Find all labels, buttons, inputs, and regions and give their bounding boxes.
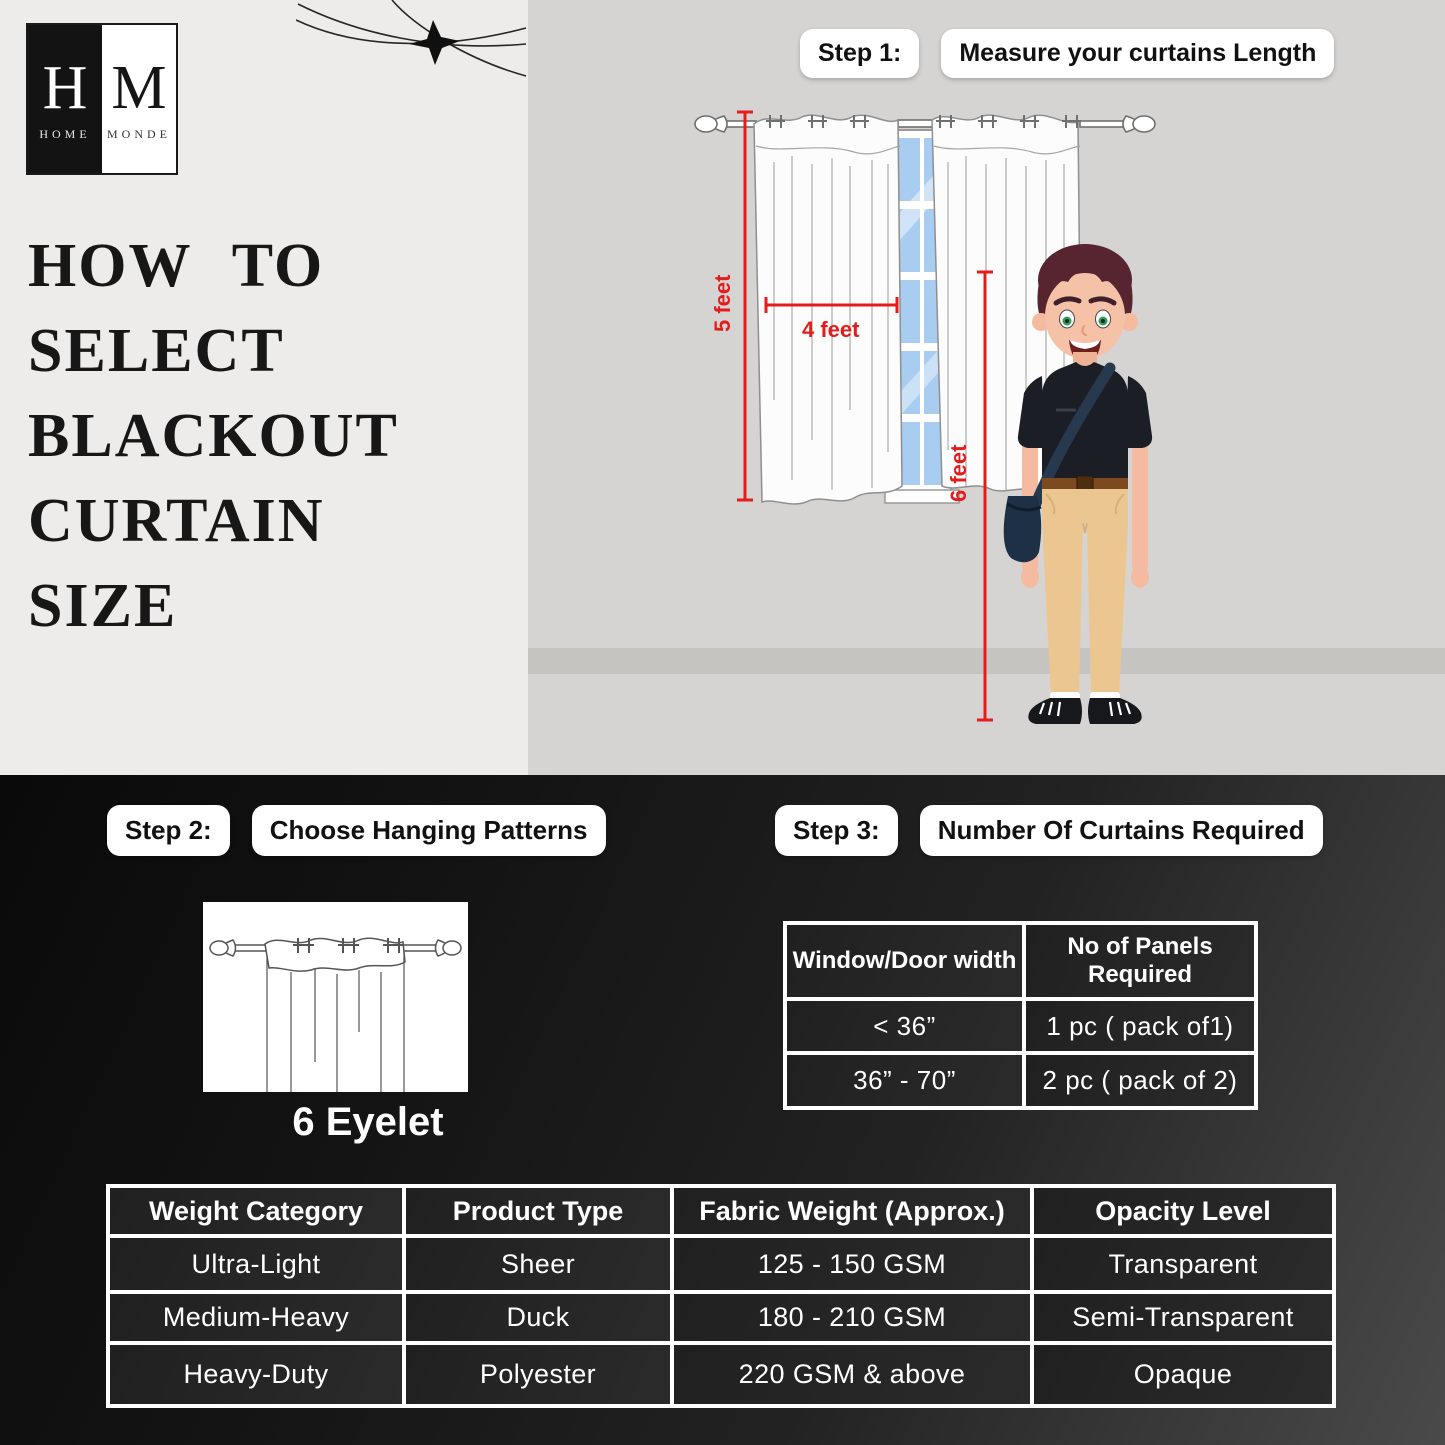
panels-table-header-width: Window/Door width: [787, 925, 1022, 997]
brand-word-monde: MONDE: [107, 127, 171, 142]
step2-label-badge: Step 2:: [107, 805, 230, 856]
fabric-table-header: Product Type: [406, 1188, 670, 1234]
panels-table-header-panels: No of Panels Required: [1026, 925, 1254, 997]
fabric-table-cell: Ultra-Light: [110, 1238, 402, 1290]
page-title-line: SIZE: [28, 564, 399, 649]
panels-table-cell: < 36”: [787, 1001, 1022, 1051]
fabric-table-cell: Polyester: [406, 1345, 670, 1404]
fabric-table-cell: Medium-Heavy: [110, 1294, 402, 1341]
fabric-spec-table: Weight Category Product Type Fabric Weig…: [106, 1184, 1336, 1408]
fabric-table-cell: Semi-Transparent: [1034, 1294, 1332, 1341]
eyelet-curtain-drawing: [203, 902, 468, 1092]
curtain-width-label: 4 feet: [802, 317, 860, 342]
brand-logo: H HOME M MONDE: [26, 23, 178, 175]
hanging-pattern-card: [203, 902, 468, 1092]
panels-table-cell: 1 pc ( pack of1): [1026, 1001, 1254, 1051]
page-title-line: BLACKOUT: [28, 394, 399, 479]
panels-required-table: Window/Door width No of Panels Required …: [783, 921, 1258, 1110]
page-title-line: HOW TO: [28, 224, 399, 309]
brand-logo-left: H HOME: [28, 25, 102, 173]
step2-header: Step 2: Choose Hanging Patterns: [107, 805, 606, 856]
panels-table-cell: 36” - 70”: [787, 1055, 1022, 1106]
step3-label-badge: Step 3:: [775, 805, 898, 856]
sparkle-swoosh-icon: [296, 0, 528, 82]
intro-panel: H HOME M MONDE HOW TO SELECT BLACKOUT CU…: [0, 0, 528, 775]
fabric-table-cell: 125 - 150 GSM: [674, 1238, 1030, 1290]
curtain-size-infographic: H HOME M MONDE HOW TO SELECT BLACKOUT CU…: [0, 0, 1445, 1445]
left-curtain-panel: [754, 115, 902, 504]
brand-logo-right: M MONDE: [102, 25, 176, 173]
person-height-label: 6 feet: [946, 444, 971, 502]
step2-caption-badge: Choose Hanging Patterns: [252, 805, 606, 856]
page-title: HOW TO SELECT BLACKOUT CURTAIN SIZE: [28, 224, 399, 649]
fabric-table-header: Fabric Weight (Approx.): [674, 1188, 1030, 1234]
fabric-table-cell: Opaque: [1034, 1345, 1332, 1404]
fabric-table-cell: 220 GSM & above: [674, 1345, 1030, 1404]
brand-initial-m: M: [111, 57, 166, 119]
fabric-table-cell: Heavy-Duty: [110, 1345, 402, 1404]
fabric-table-header: Opacity Level: [1034, 1188, 1332, 1234]
step1-label-badge: Step 1:: [800, 29, 919, 78]
step3-caption-badge: Number Of Curtains Required: [920, 805, 1323, 856]
step1-header: Step 1: Measure your curtains Length: [800, 29, 1334, 78]
step1-caption-badge: Measure your curtains Length: [941, 29, 1334, 78]
fabric-table-header: Weight Category: [110, 1188, 402, 1234]
hanging-pattern-label: 6 Eyelet: [203, 1100, 533, 1145]
panels-table-cell: 2 pc ( pack of 2): [1026, 1055, 1254, 1106]
fabric-table-cell: 180 - 210 GSM: [674, 1294, 1030, 1341]
page-title-line: CURTAIN: [28, 479, 399, 564]
brand-initial-h: H: [43, 57, 88, 119]
measure-curtain-illustration: 5 feet 4 feet 6 feet: [690, 100, 1260, 740]
fabric-table-cell: Duck: [406, 1294, 670, 1341]
page-title-line: SELECT: [28, 309, 399, 394]
step3-header: Step 3: Number Of Curtains Required: [775, 805, 1323, 856]
fabric-table-cell: Sheer: [406, 1238, 670, 1290]
curtain-height-label: 5 feet: [710, 274, 735, 332]
fabric-table-cell: Transparent: [1034, 1238, 1332, 1290]
brand-word-home: HOME: [39, 127, 90, 142]
